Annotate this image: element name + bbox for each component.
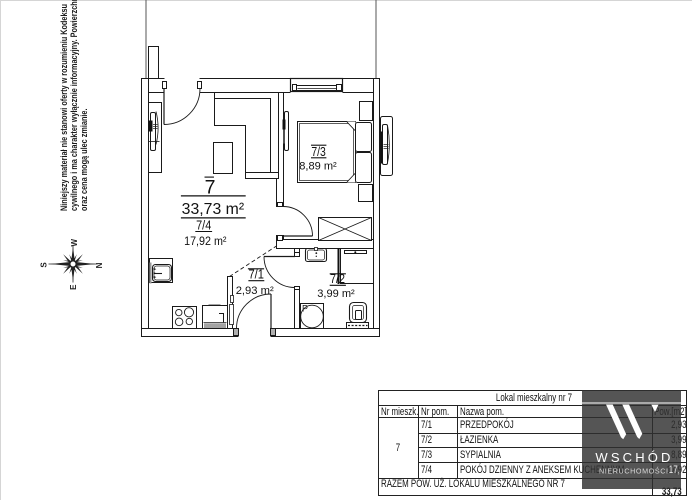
svg-text:NIERUCHOMOŚCI: NIERUCHOMOŚCI [599,467,668,476]
svg-text:WSCHÓD: WSCHÓD [595,450,670,465]
